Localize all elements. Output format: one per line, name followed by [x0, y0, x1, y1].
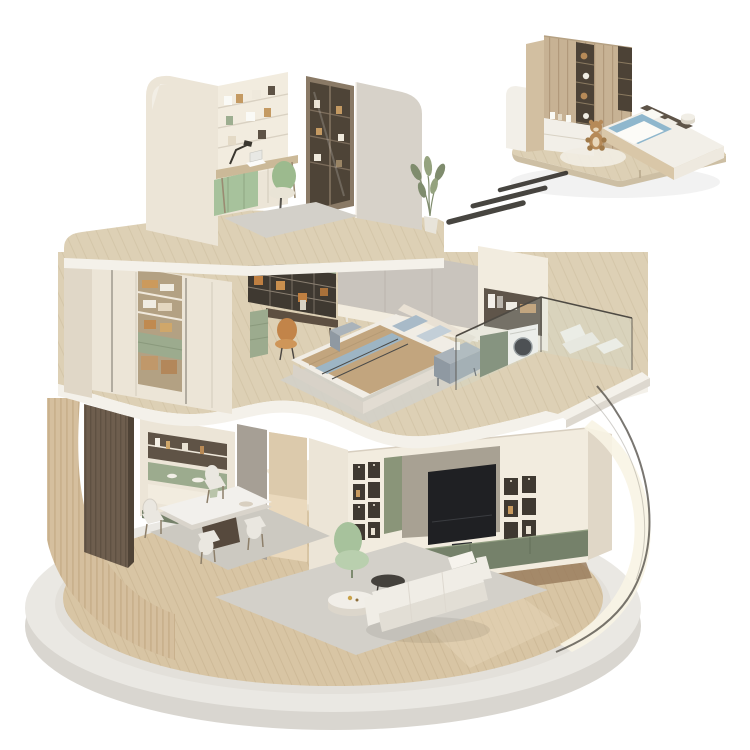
- television: [428, 464, 496, 545]
- scene-canvas: [0, 0, 750, 750]
- wardrobe-open-shelves: [138, 268, 182, 392]
- study-right-wall: [356, 82, 422, 230]
- motion-line: [449, 203, 523, 222]
- motion-line: [473, 188, 545, 206]
- module-back-panel: [506, 86, 528, 152]
- folded-clothes: [160, 284, 174, 291]
- green-panel: [384, 456, 402, 534]
- leather-bag: [144, 320, 156, 329]
- wardrobe: [92, 262, 232, 414]
- isometric-home-render: [0, 0, 750, 750]
- tv-screen: [428, 464, 496, 545]
- glass-bookcase: [306, 76, 354, 216]
- vanity-mirror: [300, 300, 306, 310]
- storage-basket: [161, 360, 177, 374]
- top-floor-study: [146, 72, 447, 246]
- module-stool: [681, 114, 695, 125]
- towel: [497, 296, 503, 308]
- kids-bedroom-module: [506, 36, 726, 198]
- walnut-panel: [84, 404, 134, 568]
- module-shelf-right: [618, 46, 632, 112]
- study-left-wall: [146, 76, 218, 246]
- ground-floor: [47, 398, 651, 686]
- storage-basket: [141, 356, 158, 370]
- module-rug: [560, 147, 626, 167]
- towel: [488, 294, 495, 308]
- folded-blanket: [142, 280, 158, 288]
